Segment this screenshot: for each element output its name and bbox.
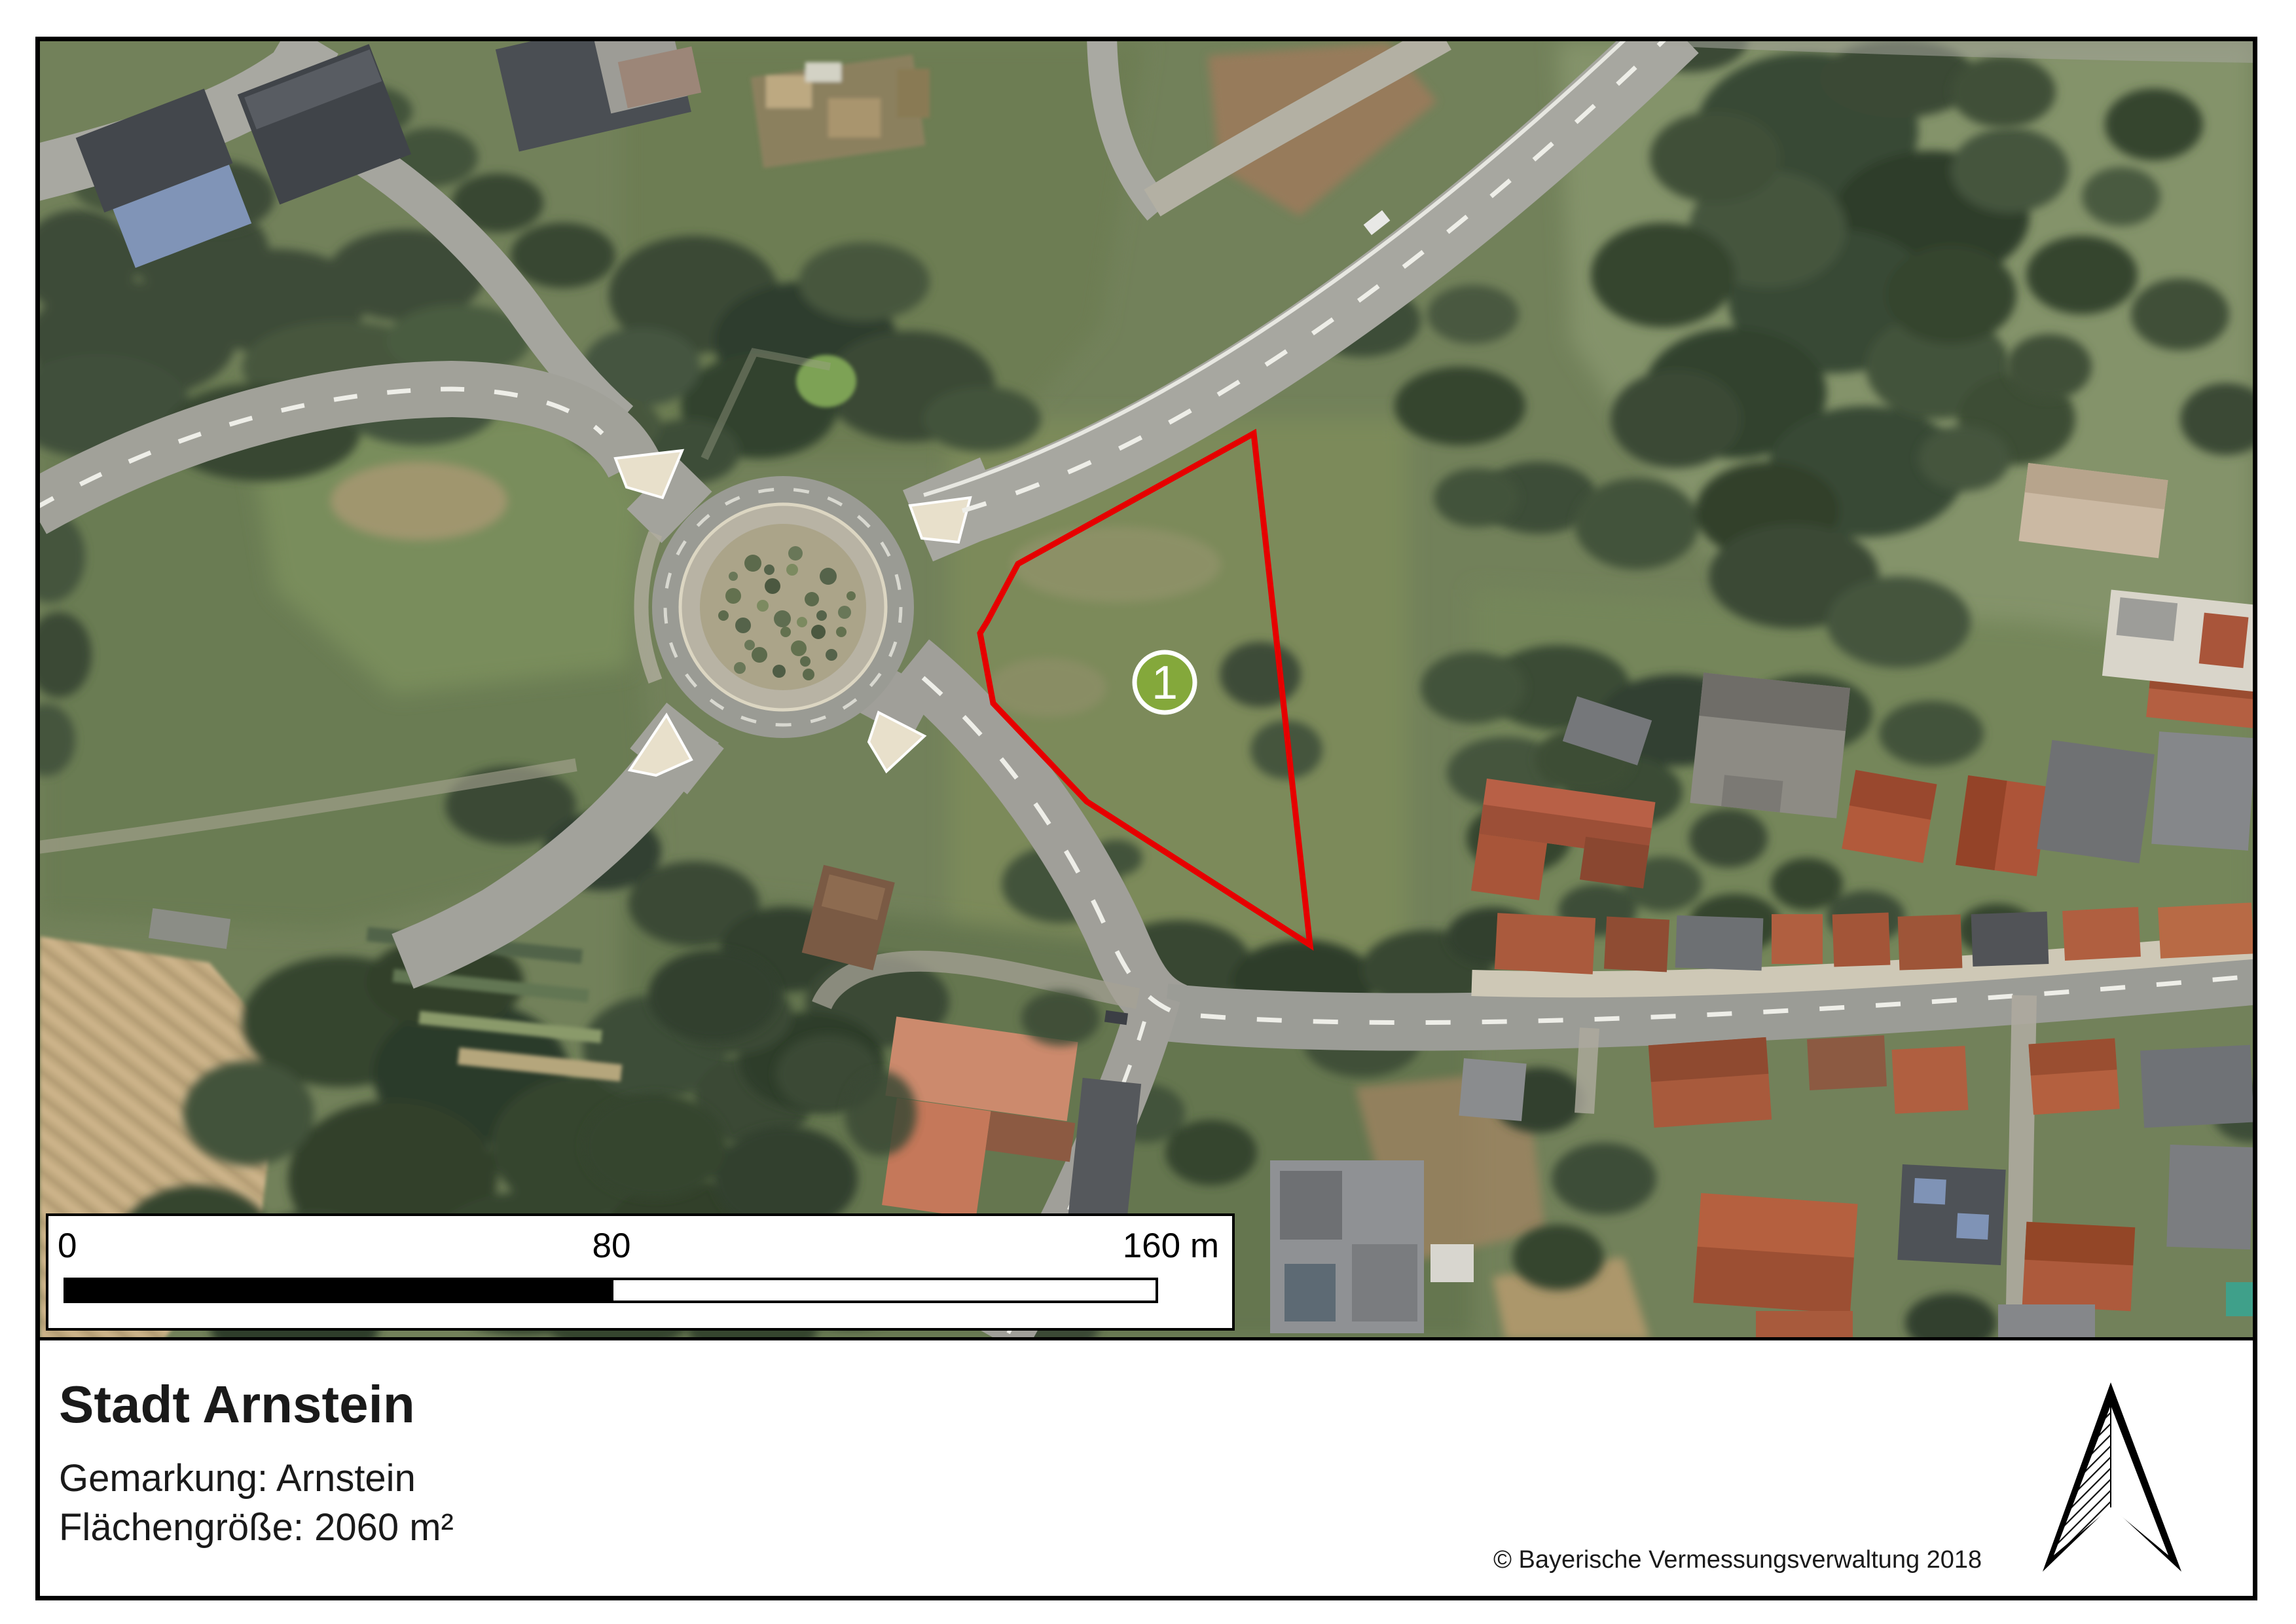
svg-text:Gemarkung: Arnstein: Gemarkung: Arnstein (59, 1457, 416, 1500)
svg-text:© Bayerische Vermessungsverwal: © Bayerische Vermessungsverwaltung 2018 (1493, 1546, 1982, 1574)
svg-text:1: 1 (1152, 657, 1178, 709)
svg-text:Stadt Arnstein: Stadt Arnstein (59, 1375, 415, 1433)
svg-text:160 m: 160 m (1123, 1227, 1219, 1265)
svg-text:0: 0 (58, 1227, 77, 1265)
svg-text:Flächengröße: 2060 m²: Flächengröße: 2060 m² (59, 1506, 454, 1549)
svg-text:80: 80 (592, 1227, 631, 1265)
